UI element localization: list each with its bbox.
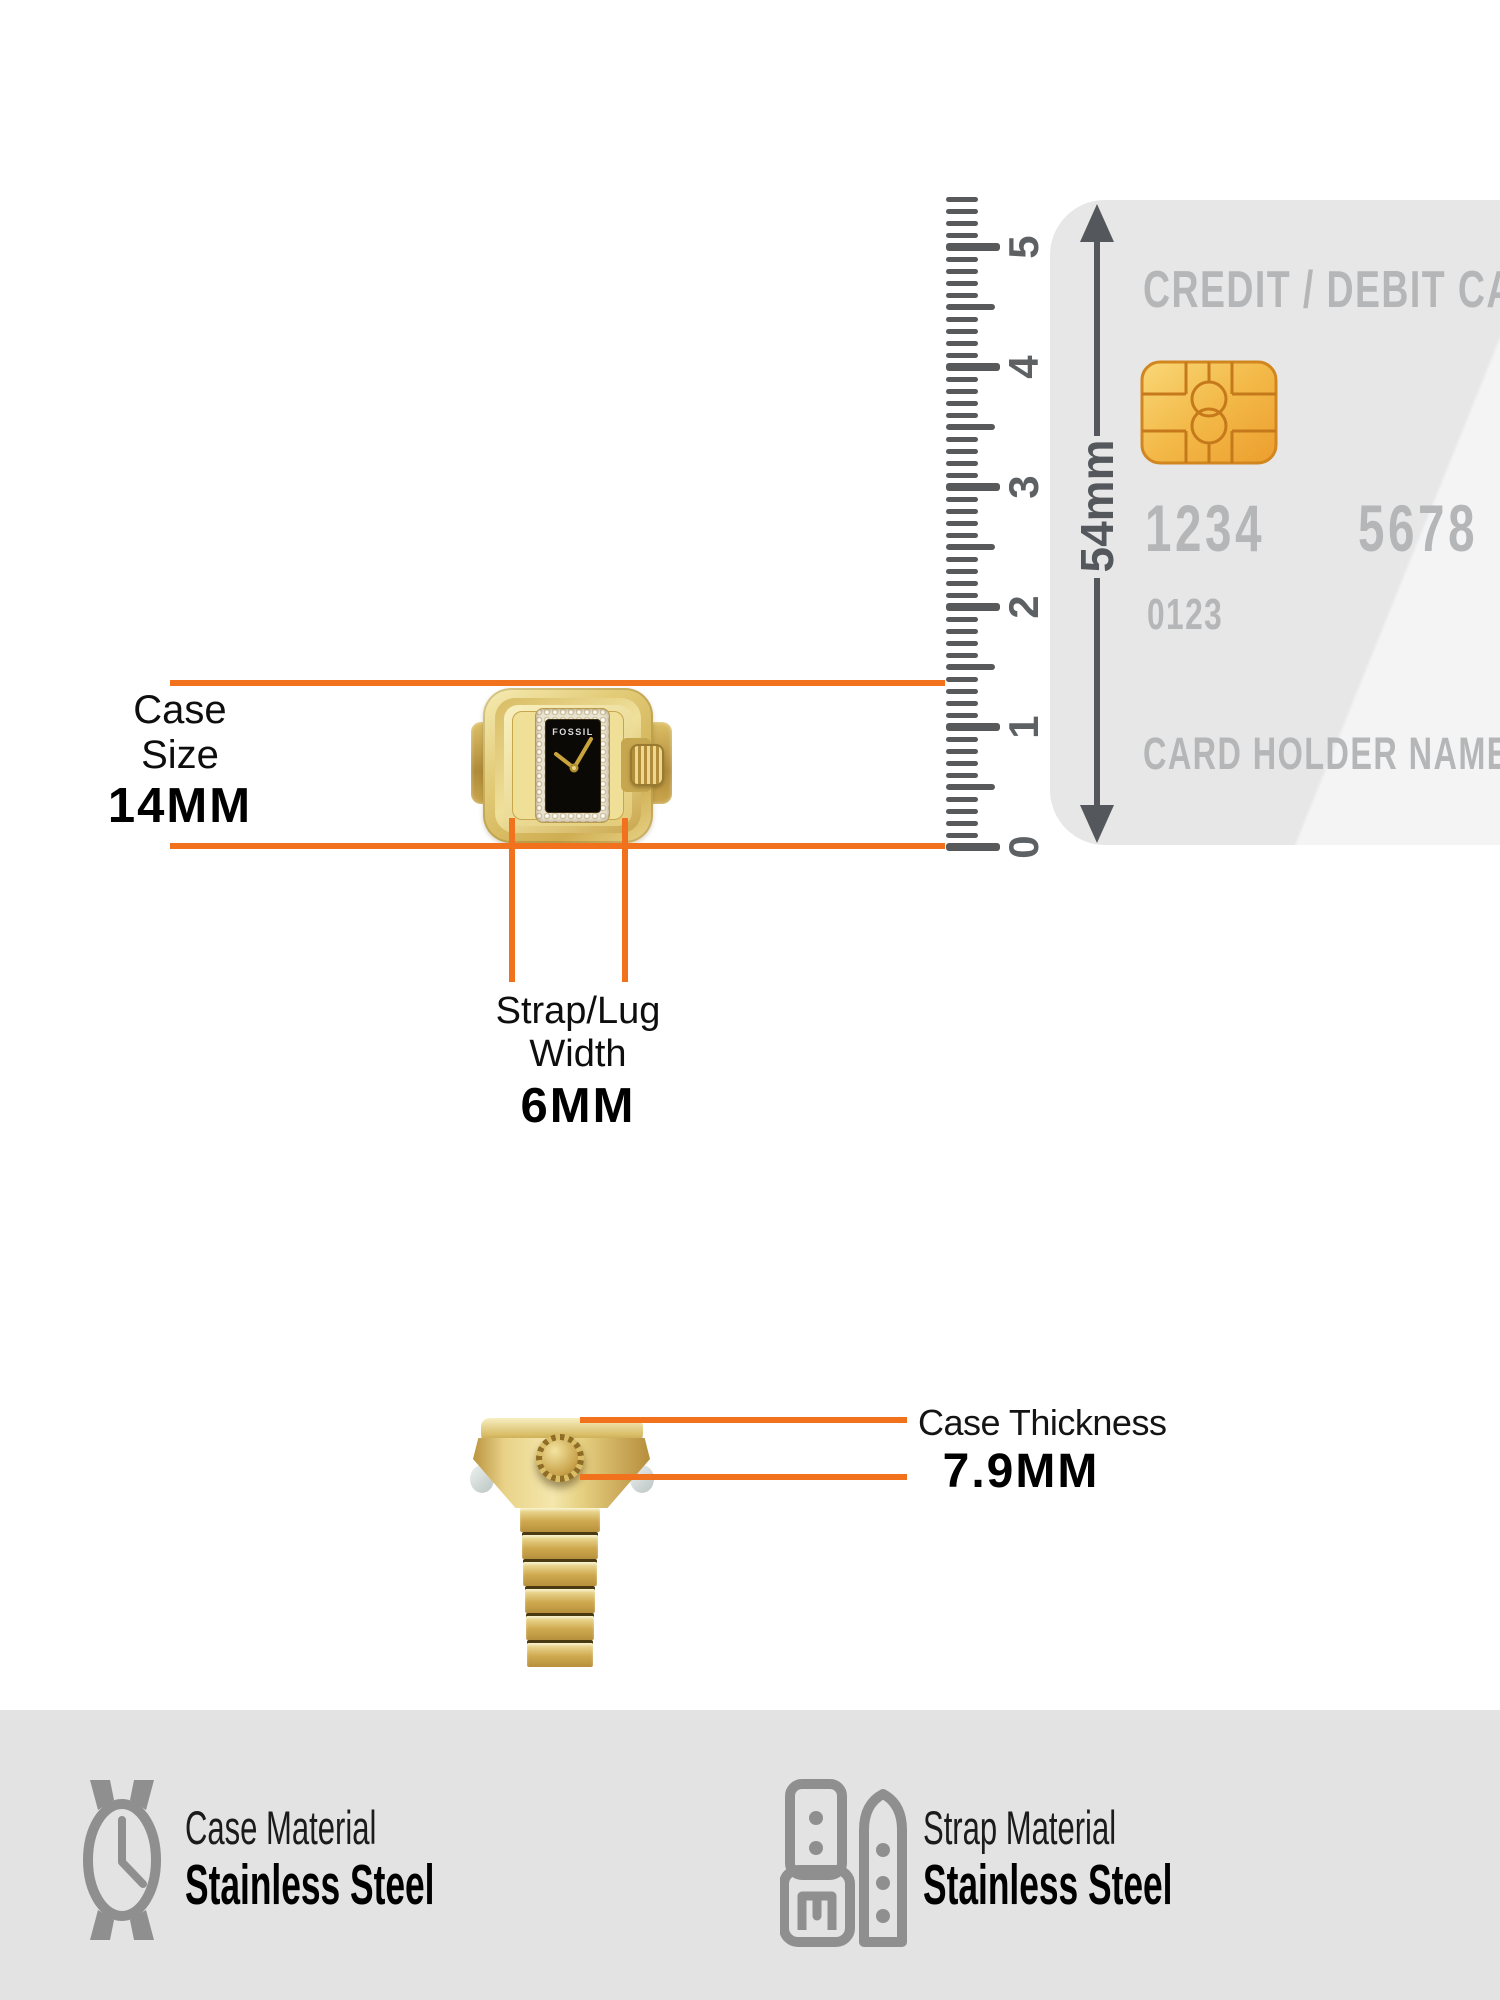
card-height-arrow-top <box>1080 204 1114 242</box>
ruler-tick <box>946 569 978 574</box>
case-thickness-line-top <box>580 1417 907 1423</box>
ruler-tick <box>946 401 978 406</box>
ruler-tick <box>946 521 978 526</box>
ruler-number: 0 <box>1002 825 1046 869</box>
case-thickness-label: Case Thickness <box>918 1402 1166 1444</box>
watch-dimensions-infographic: 012345 CREDIT / DEBIT CARD 1234 5678 012… <box>0 0 1500 2000</box>
card-secondary-number: 0123 <box>1147 590 1253 640</box>
card-height-arrow-bottom <box>1080 805 1114 843</box>
emv-chip-icon <box>1140 360 1278 465</box>
case-thickness-line-bottom <box>580 1474 907 1480</box>
ruler-tick <box>946 809 978 814</box>
ruler-number: 4 <box>1002 345 1046 389</box>
strap-icon <box>780 1770 907 1947</box>
lug-width-value: 6MM <box>438 1078 718 1134</box>
ruler-tick <box>946 784 995 790</box>
ruler-tick <box>946 221 978 226</box>
lug-width-line-right <box>622 818 628 982</box>
ruler-number: 2 <box>1002 585 1046 629</box>
ruler-tick <box>946 689 978 694</box>
ruler-tick <box>946 593 978 598</box>
ruler-tick <box>946 243 1000 251</box>
case-thickness-value: 7.9MM <box>911 1444 1131 1499</box>
ruler-tick <box>946 664 995 670</box>
ruler-tick <box>946 293 978 298</box>
ruler-tick <box>946 269 978 274</box>
ruler-tick <box>946 317 978 322</box>
ruler-tick <box>946 304 995 310</box>
ruler-tick <box>946 641 978 646</box>
ruler-tick <box>946 713 978 718</box>
ruler-tick <box>946 413 978 418</box>
ruler-tick <box>946 341 978 346</box>
strap-material-label: Strap Material <box>923 1800 1216 1855</box>
ruler-tick <box>946 749 978 754</box>
card-holder-label: CARD HOLDER NAME <box>1143 728 1500 780</box>
card-number-left: 1234 <box>1145 490 1312 566</box>
ruler-tick <box>946 197 978 202</box>
ring-watch-front-image: FOSSIL <box>471 686 672 845</box>
case-size-line-bottom <box>170 843 945 849</box>
ruler-tick <box>946 677 978 682</box>
ring-watch-side-image <box>460 1405 690 1685</box>
ruler-tick <box>946 581 978 586</box>
side-crown <box>536 1434 584 1482</box>
lug-width-label: Strap/Lug Width <box>438 990 718 1076</box>
case-size-value: 14MM <box>60 778 300 834</box>
ruler-tick <box>946 761 978 766</box>
ruler-tick <box>946 389 978 394</box>
lug-width-line-left <box>509 818 515 982</box>
ruler-tick <box>946 257 978 262</box>
ruler-tick <box>946 723 1000 731</box>
ruler-tick <box>946 424 995 430</box>
ruler-tick <box>946 329 978 334</box>
watch-case-icon <box>77 1780 167 1940</box>
ruler-tick <box>946 437 978 442</box>
ruler-tick <box>946 497 978 502</box>
ruler-tick <box>946 544 995 550</box>
ruler-tick <box>946 533 978 538</box>
ruler-tick <box>946 461 978 466</box>
ruler-tick <box>946 483 1000 491</box>
ruler-tick <box>946 353 978 358</box>
card-title: CREDIT / DEBIT CARD <box>1143 260 1500 320</box>
ruler-tick <box>946 449 978 454</box>
case-material-value: Stainless Steel <box>185 1852 587 1918</box>
case-size-label: Case Size <box>60 688 300 778</box>
ruler-tick <box>946 737 978 742</box>
ruler-tick <box>946 557 978 562</box>
watch-crown <box>630 744 664 786</box>
ruler-tick <box>946 833 978 838</box>
ruler-tick <box>946 509 978 514</box>
ruler-tick <box>946 821 978 826</box>
ruler-tick <box>946 233 978 238</box>
card-height-label: 54mm <box>1047 456 1147 556</box>
ruler-tick <box>946 363 1000 371</box>
ruler-number: 1 <box>1002 705 1046 749</box>
ruler-tick <box>946 281 978 286</box>
watch-dial: FOSSIL <box>545 719 601 813</box>
ruler-tick <box>946 653 978 658</box>
ruler-tick <box>946 377 978 382</box>
ruler-tick <box>946 473 978 478</box>
materials-footer: Case Material Stainless Steel Strap Mate… <box>0 1710 1500 2000</box>
strap-material-value: Stainless Steel <box>923 1852 1325 1918</box>
ruler-tick <box>946 617 978 622</box>
ruler-tick <box>946 797 978 802</box>
ruler-tick <box>946 773 978 778</box>
watch-hands <box>546 720 602 814</box>
side-strap-links <box>517 1508 603 1667</box>
case-size-line-top <box>170 680 945 686</box>
ruler-tick <box>946 603 1000 611</box>
card-number-right: 5678 <box>1358 490 1500 566</box>
ruler-number: 5 <box>1002 225 1046 269</box>
case-material-label: Case Material <box>185 1800 475 1855</box>
card-height-arrow-shaft <box>1094 238 1100 436</box>
card-height-arrow-shaft <box>1094 578 1100 810</box>
ruler-tick <box>946 701 978 706</box>
ruler-tick <box>946 629 978 634</box>
ruler-tick <box>946 209 978 214</box>
ruler-number: 3 <box>1002 465 1046 509</box>
ruler-tick <box>946 843 1000 851</box>
